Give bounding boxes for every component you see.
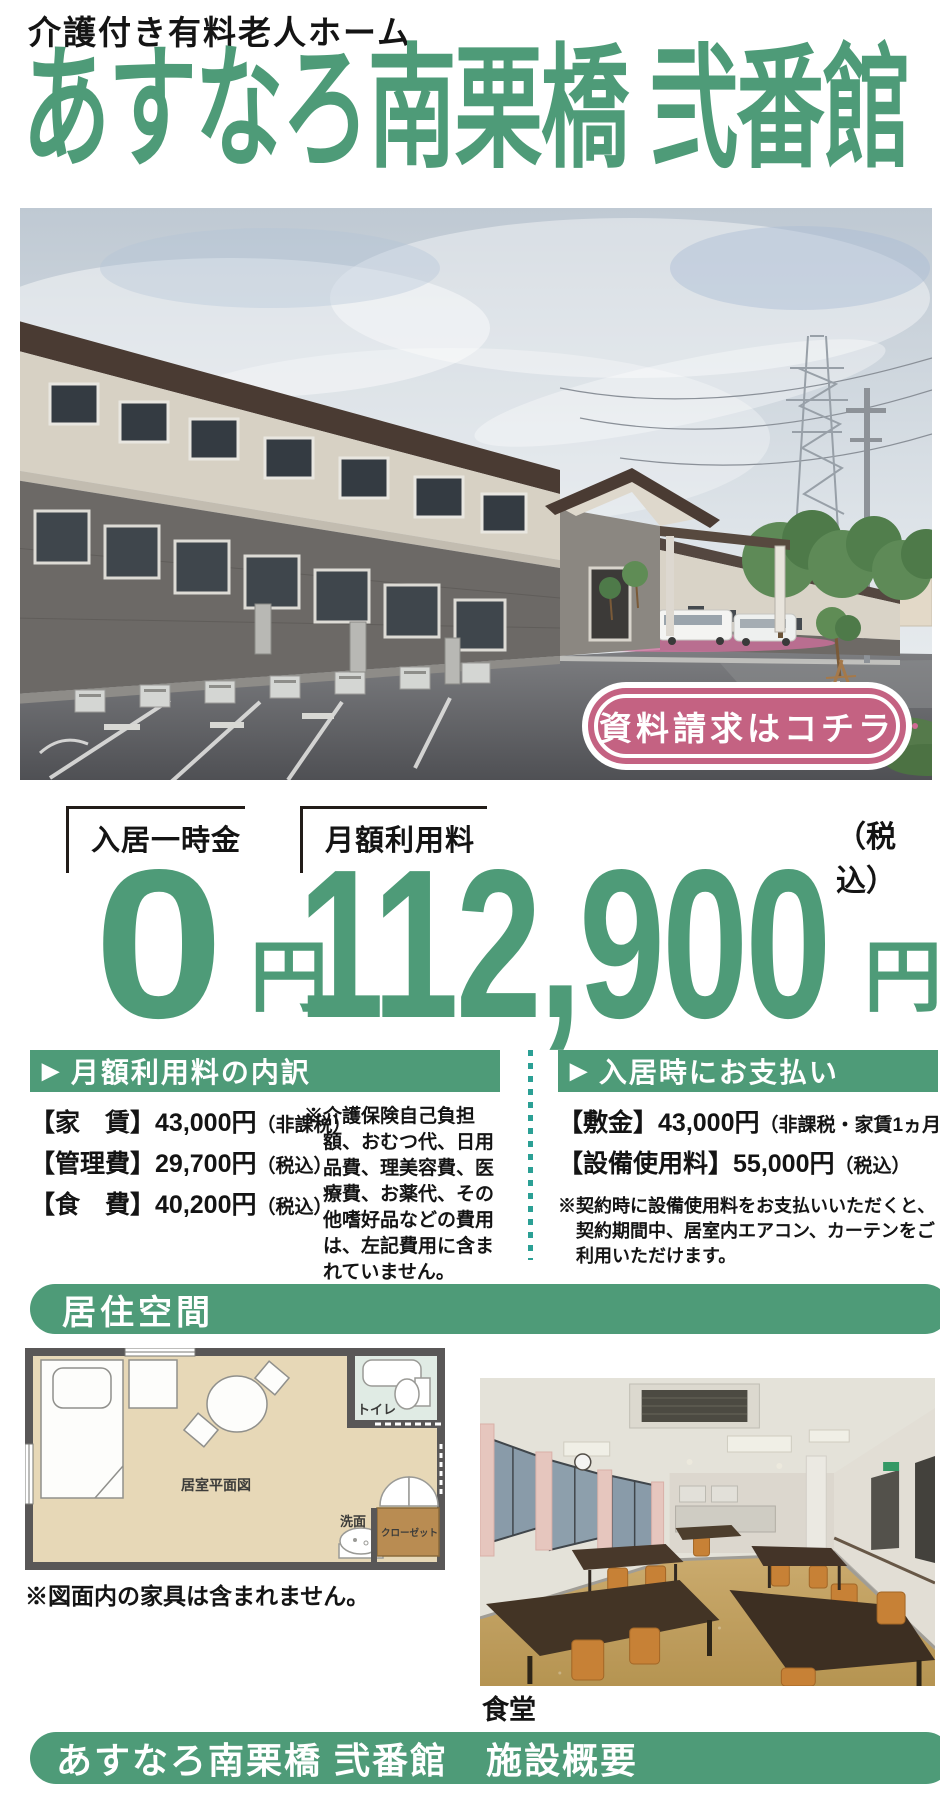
bed [41,1360,123,1498]
tax-included-note: （税込） [836,812,940,900]
toilet-label: トイレ [357,1402,396,1417]
fee-line-deposit: 【敷金】43,000円（非課税・家賃1ヵ月分） [558,1104,938,1145]
arrow-icon: ▶ [570,1060,589,1082]
dining-caption: 食堂 [482,1688,536,1727]
monthly-breakdown-section: ▶ 月額利用料の内訳 【家 賃】43,000円（非課税） 【管理費】29,700… [30,1050,500,1286]
move-in-payment-header: ▶ 入居時にお支払い [558,1050,938,1092]
dining-room-photo [480,1378,935,1686]
flyer-page: 介護付き有料老人ホーム あすなろ南栗橋 弐番館 [0,0,940,1796]
side-table [129,1360,177,1408]
wash-label: 洗面 [340,1514,366,1529]
facility-overview-header: あすなろ南栗橋 弐番館 施設概要 [30,1732,940,1784]
fee-line-meals: 【食 費】40,200円（税込） [30,1186,294,1227]
living-space-title: 居住空間 [62,1285,214,1334]
column-divider [528,1050,533,1260]
monthly-breakdown-title: 月額利用料の内訳 [71,1051,311,1091]
monthly-breakdown-header: ▶ 月額利用料の内訳 [30,1050,500,1092]
living-space-header: 居住空間 [30,1284,940,1334]
closet-label: クローゼット [381,1527,438,1539]
monthly-fee-list: 【家 賃】43,000円（非課税） 【管理費】29,700円（税込） 【食 費】… [30,1104,294,1286]
facility-title: あすなろ南栗橋 弐番館 [22,40,909,181]
badge-label: 資料請求はコチラ [599,702,895,750]
monthly-breakdown-note: ※介護保険自己負担額、おむつ代、日用品費、理美容費、医療費、お薬代、その他嗜好品… [304,1104,500,1286]
move-in-payment-title: 入居時にお支払い [599,1051,839,1091]
room-floorplan: トイレ 居室平面図 洗面 クローゼット [25,1348,445,1570]
monthly-fee-unit: 円 [864,938,940,1016]
closet: クローゼット [377,1477,439,1556]
monthly-fee-amount: 112,900 [298,838,828,1050]
fee-line-management: 【管理費】29,700円（税込） [30,1145,294,1186]
facility-overview-title: あすなろ南栗橋 弐番館 施設概要 [56,1732,638,1784]
move-in-payment-section: ▶ 入居時にお支払い 【敷金】43,000円（非課税・家賃1ヵ月分） 【設備使用… [558,1050,938,1269]
fee-line-rent: 【家 賃】43,000円（非課税） [30,1104,294,1145]
floorplan-note: ※図面内の家具は含まれません。 [25,1577,369,1611]
move-in-payment-note: ※契約時に設備使用料をお支払いいただくと、契約期間中、居室内エアコン、カーテンを… [558,1194,938,1269]
plan-title-label: 居室平面図 [181,1477,251,1493]
move-in-fee-amount: 0 [94,838,219,1050]
request-info-badge[interactable]: 資料請求はコチラ [588,688,906,764]
arrow-icon: ▶ [42,1060,61,1082]
fee-line-equipment: 【設備使用料】55,000円（税込） [558,1145,938,1186]
